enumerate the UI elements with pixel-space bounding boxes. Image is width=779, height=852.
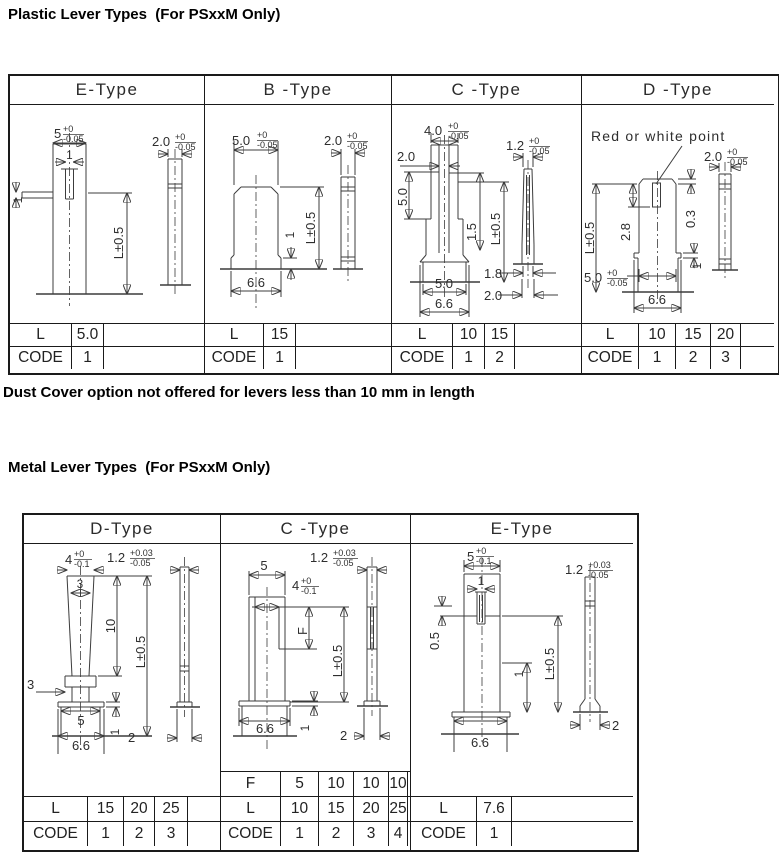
dim-tol: -0.05: [727, 157, 748, 167]
metal-column-c-type: C -Type: [221, 515, 411, 850]
dim-label: 0.3: [683, 210, 698, 228]
dim-tol: +0.03: [588, 560, 611, 570]
code-row: CODE 1 2 3 4: [221, 821, 410, 846]
l-value: 15: [88, 797, 124, 821]
dim-label: 6.6: [435, 296, 453, 311]
dim-label: 1: [514, 671, 526, 677]
dim-label: 6.6: [471, 735, 489, 750]
dim-label: 5: [77, 713, 84, 728]
dim-label: 5: [467, 549, 474, 564]
dim-label: 1: [300, 725, 312, 731]
dim-label: 2.8: [618, 223, 633, 241]
dim-label: F: [295, 627, 310, 635]
dim-label: 2: [340, 728, 347, 743]
column-header: D -Type: [582, 76, 774, 105]
row-label: CODE: [582, 347, 639, 369]
l-value: 10: [639, 324, 676, 346]
dim-label: 2: [612, 718, 619, 733]
dim-label: 2.0: [704, 149, 722, 164]
drawing-metal-c-type: 5 4 +0 -0.1 F L±0.5 1.2 +0.03: [221, 544, 410, 771]
dim-tol: +0: [529, 136, 539, 146]
section-title-metal: Metal Lever Types (For PSxxM Only): [8, 459, 270, 476]
column-header: B -Type: [205, 76, 391, 105]
drawing-plastic-d-type: Red or white point: [582, 105, 774, 323]
code-value: 1: [88, 822, 124, 846]
f-value: 10: [319, 772, 354, 796]
dim-label: 1.8: [484, 266, 502, 281]
metal-column-d-type: D-Type: [24, 515, 221, 850]
dim-label: L±0.5: [582, 222, 597, 254]
plastic-column-d-type: D -Type Red or white point: [582, 76, 774, 373]
code-value: 1: [453, 347, 485, 369]
dim-tol: +0: [607, 268, 617, 278]
dim-label: 5.0: [584, 270, 602, 285]
code-value: 1: [639, 347, 676, 369]
datasheet-page: Plastic Lever Types (For PSxxM Only) E-T…: [0, 0, 779, 852]
dim-tol: +0: [476, 546, 486, 556]
callout-red-white-point: Red or white point: [591, 128, 725, 144]
dim-label: 1.2: [506, 138, 524, 153]
dim-label: 1: [66, 150, 72, 162]
drawing-plastic-e-type: 1 1 5 +0 -0.05 L±0.5: [10, 105, 204, 323]
code-row: CODE 1: [411, 821, 633, 846]
dim-label: 1.2: [107, 550, 125, 565]
code-value: 2: [485, 347, 515, 369]
code-value: 1: [264, 347, 296, 369]
dim-tol: -0.1: [74, 559, 90, 569]
code-value: 4: [389, 822, 408, 846]
dim-label: 6.6: [247, 275, 265, 290]
metal-column-e-type: E-Type: [411, 515, 633, 850]
l-row: L 7.6: [411, 796, 633, 821]
l-row: L 10 15 20 25: [221, 796, 410, 821]
dim-label: 1: [692, 263, 704, 269]
f-row: F 5 10 10 10: [221, 771, 410, 796]
dim-tol: -0.05: [448, 131, 469, 141]
row-label: L: [392, 324, 453, 346]
row-label: L: [24, 797, 88, 821]
dim-tol: +0: [448, 121, 458, 131]
row-label: CODE: [221, 822, 281, 846]
dim-label: 2.0: [484, 288, 502, 303]
dim-tol: -0.05: [529, 146, 550, 156]
dim-label: 5: [54, 126, 61, 141]
dim-label: 2: [128, 730, 135, 745]
drawing-metal-e-type: 0.5 1 5 +0 -0.1: [411, 544, 633, 796]
dim-tol: +0.03: [130, 548, 153, 558]
dim-label: 4: [292, 578, 299, 593]
l-value: 20: [354, 797, 389, 821]
dim-label: L±0.5: [111, 227, 126, 259]
l-value: 20: [124, 797, 155, 821]
row-label: CODE: [24, 822, 88, 846]
row-label: F: [221, 772, 281, 796]
row-label: CODE: [10, 347, 72, 369]
metal-lever-table: D-Type: [22, 513, 639, 852]
dim-label: 3: [27, 677, 34, 692]
l-row: L 15: [205, 323, 391, 346]
dim-label: 1: [478, 576, 484, 588]
column-header: D-Type: [24, 515, 220, 544]
dim-label: L±0.5: [542, 648, 557, 680]
f-value: 10: [389, 772, 408, 796]
plastic-column-b-type: B -Type 5: [205, 76, 392, 373]
dim-tol: -0.05: [607, 278, 628, 288]
l-value: 25: [155, 797, 188, 821]
dim-tol: +0: [63, 124, 73, 134]
dim-label: 0.5: [427, 632, 442, 650]
code-value: 3: [711, 347, 741, 369]
dim-label: 1: [110, 729, 122, 735]
code-row: CODE 1: [10, 346, 204, 369]
dim-tol: +0: [727, 147, 737, 157]
column-header: E-Type: [10, 76, 204, 105]
code-value: 2: [676, 347, 711, 369]
code-value: 3: [155, 822, 188, 846]
row-label: L: [205, 324, 264, 346]
dim-label: L±0.5: [488, 213, 503, 245]
dim-label: 6.6: [72, 738, 90, 753]
dim-label: 4.0: [424, 123, 442, 138]
dim-tol: -0.05: [588, 570, 609, 580]
code-row: CODE 1 2 3: [582, 346, 774, 369]
l-row: L 15 20 25: [24, 796, 220, 821]
l-row: L 10 15 20: [582, 323, 774, 346]
dim-label: 10: [103, 619, 118, 633]
row-label: L: [582, 324, 639, 346]
code-row: CODE 1 2 3: [24, 821, 220, 846]
row-label: L: [221, 797, 281, 821]
dim-tol: +0: [74, 549, 84, 559]
dim-label: L±0.5: [330, 645, 345, 677]
row-label: CODE: [205, 347, 264, 369]
row-label: CODE: [392, 347, 453, 369]
l-value: 15: [319, 797, 354, 821]
plastic-column-e-type: E-Type 1: [10, 76, 205, 373]
dim-label: 5.0: [232, 133, 250, 148]
code-value: 2: [124, 822, 155, 846]
dim-tol: +0: [347, 131, 357, 141]
dim-label: 5: [260, 558, 267, 573]
dim-label: 1.5: [464, 223, 479, 241]
l-value: 25: [389, 797, 408, 821]
dim-tol: -0.05: [347, 141, 368, 151]
code-row: CODE 1 2: [392, 346, 581, 369]
dim-label: 1.2: [565, 562, 583, 577]
plastic-lever-table: E-Type 1: [8, 74, 779, 375]
l-row: L 10 15: [392, 323, 581, 346]
l-value: 15: [264, 324, 296, 346]
dim-label: 1: [285, 232, 297, 238]
column-header: C -Type: [392, 76, 581, 105]
dim-tol: -0.05: [175, 142, 196, 152]
l-value: 20: [711, 324, 741, 346]
dim-label: 3: [77, 579, 83, 591]
l-value: 7.6: [477, 797, 512, 821]
dim-label: 5.0: [435, 276, 453, 291]
code-value: 1: [281, 822, 319, 846]
row-label: CODE: [411, 822, 477, 846]
f-value: 10: [354, 772, 389, 796]
dim-label: 6.6: [648, 292, 666, 307]
dim-label: 2.0: [152, 134, 170, 149]
l-value: 5.0: [72, 324, 104, 346]
code-value: 2: [319, 822, 354, 846]
column-header: C -Type: [221, 515, 410, 544]
dim-label: 6.6: [256, 721, 274, 736]
dim-label: 4: [65, 552, 72, 567]
dim-label: 2.0: [397, 149, 415, 164]
dim-tol: -0.05: [257, 140, 278, 150]
l-value: 15: [485, 324, 515, 346]
dim-label: L±0.5: [133, 636, 148, 668]
row-label: L: [411, 797, 477, 821]
drawing-plastic-c-type: 4.0 +0 -0.05 2.0 5.0 1.5 L±0.5: [392, 105, 581, 323]
plastic-column-c-type: C -Type: [392, 76, 582, 373]
l-value: 10: [453, 324, 485, 346]
dim-label: 5.0: [395, 188, 410, 206]
f-value: 5: [281, 772, 319, 796]
code-row: CODE 1: [205, 346, 391, 369]
code-value: 3: [354, 822, 389, 846]
section-title-plastic: Plastic Lever Types (For PSxxM Only): [8, 6, 280, 23]
dim-tol: -0.05: [333, 558, 354, 568]
dim-tol: -0.05: [130, 558, 151, 568]
column-header: E-Type: [411, 515, 633, 544]
drawing-plastic-b-type: 5.0 +0 -0.05 L±0.5 1 6.6: [205, 105, 391, 323]
dim-tol: -0.05: [63, 134, 84, 144]
dust-cover-note: Dust Cover option not offered for levers…: [3, 384, 475, 401]
l-value: 10: [281, 797, 319, 821]
dim-tol: +0: [175, 132, 185, 142]
dim-label: 2.0: [324, 133, 342, 148]
code-value: 1: [72, 347, 104, 369]
dim-tol: +0.03: [333, 548, 356, 558]
drawing-metal-d-type: 4 +0 -0.1 3 1.2 +0.03 -0.05: [24, 544, 220, 796]
dim-tol: +0: [301, 576, 311, 586]
dim-label: L±0.5: [303, 212, 318, 244]
l-value: 15: [676, 324, 711, 346]
code-value: 1: [477, 822, 512, 846]
dim-label: 1.2: [310, 550, 328, 565]
l-row: L 5.0: [10, 323, 204, 346]
dim-tol: -0.1: [476, 556, 492, 566]
dim-label: 1: [13, 197, 25, 203]
dim-tol: -0.1: [301, 586, 317, 596]
dim-tol: +0: [257, 130, 267, 140]
row-label: L: [10, 324, 72, 346]
